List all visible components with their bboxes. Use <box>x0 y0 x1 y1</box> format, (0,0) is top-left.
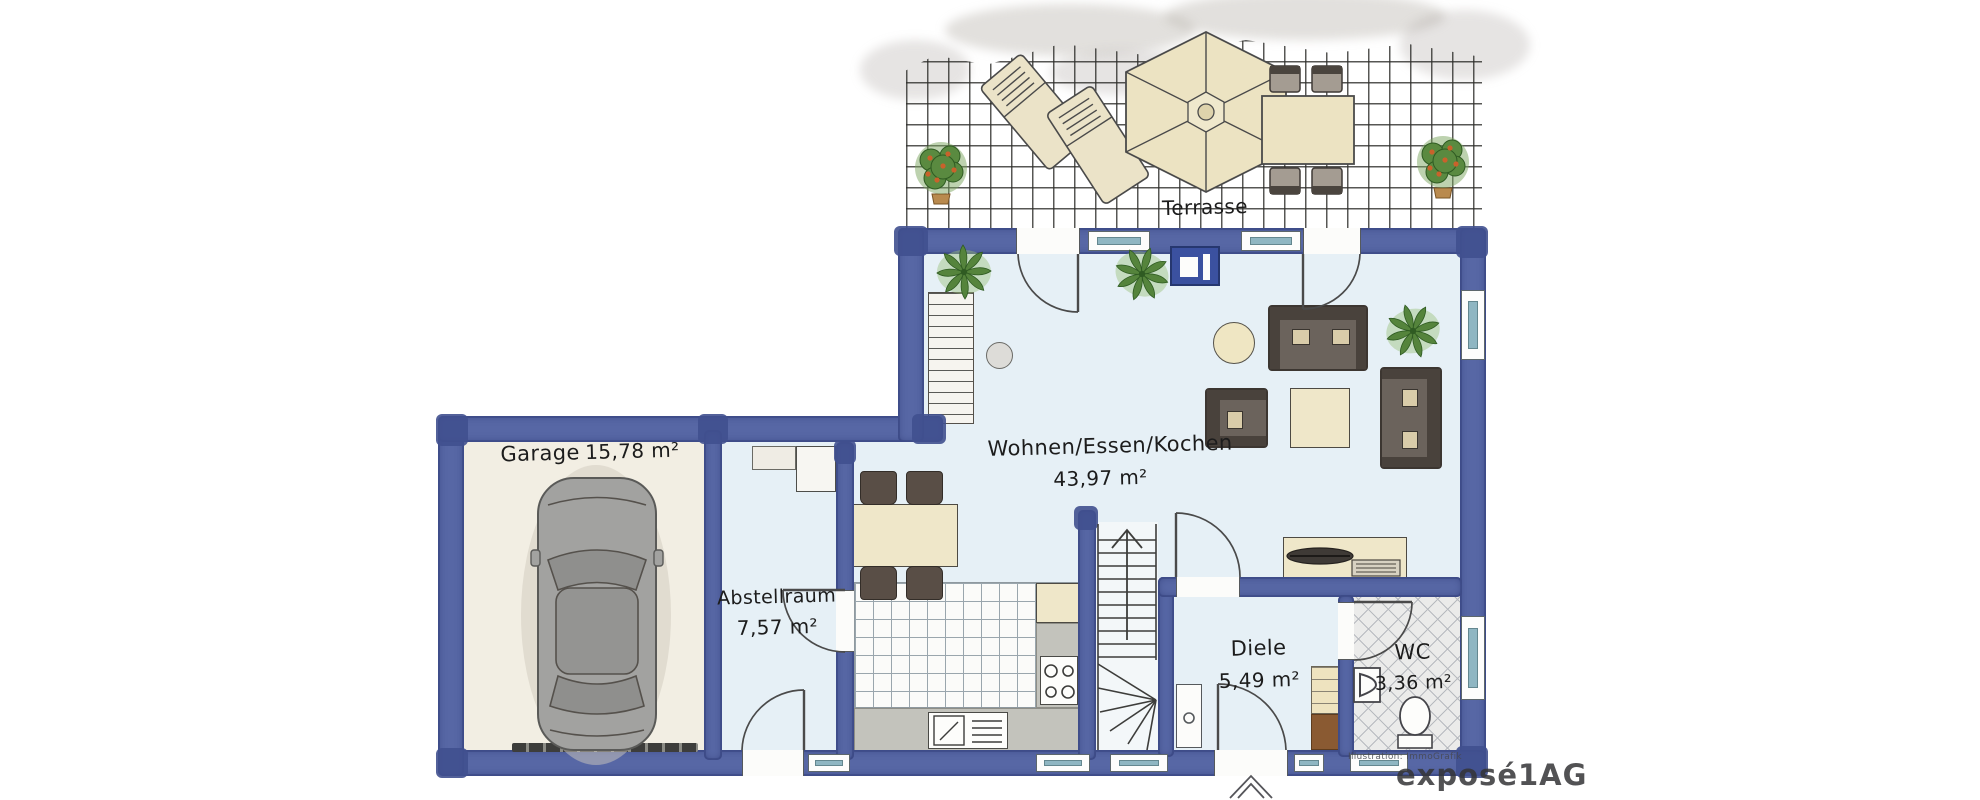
sofa-two-seat-top <box>1268 305 1368 371</box>
room-label-wc: WC 3,36 m² <box>1367 635 1459 699</box>
dining-chair <box>860 471 897 505</box>
window-pane <box>1119 760 1159 767</box>
window-bottom-stairs <box>1110 754 1168 772</box>
dining-table <box>848 504 958 567</box>
dining-chair <box>906 471 943 505</box>
room-name: Garage <box>500 440 580 466</box>
terrace-door-opening-right <box>1303 228 1361 254</box>
window-top-1 <box>1088 231 1150 251</box>
window-right-living <box>1461 290 1485 360</box>
sofa-two-seat-right <box>1380 367 1442 469</box>
wall-post <box>436 748 468 778</box>
living-diele-door-gap <box>1176 577 1240 597</box>
wall-post <box>894 226 928 256</box>
wall-post <box>1456 226 1488 258</box>
window-pane <box>1250 237 1292 245</box>
storage-shelf <box>752 446 796 470</box>
room-label-wohnen: Wohnen/Essen/Kochen 43,97 m² <box>987 427 1213 496</box>
washing-machine <box>796 446 836 492</box>
room-label-garage: Garage 15,78 m² <box>490 433 691 471</box>
round-rug <box>1213 322 1255 364</box>
room-label-diele: Diele 5,49 m² <box>1203 631 1315 697</box>
wall-bottom <box>438 750 1486 776</box>
stove-pipe <box>1203 254 1210 280</box>
window-pane <box>1044 760 1081 767</box>
wall-kitchen-stairs <box>1078 510 1096 760</box>
room-label-abstellraum: Abstellraum 7,57 m² <box>711 581 843 645</box>
room-label-terrasse: Terrasse <box>1150 191 1261 225</box>
wall-living-left <box>898 228 924 442</box>
window-pane <box>815 760 844 767</box>
wall-post <box>912 414 946 444</box>
understairs-door <box>1176 684 1202 748</box>
window-pane <box>1299 760 1319 767</box>
wood-stove <box>1170 246 1220 286</box>
abstellraum-door-opening <box>742 750 804 776</box>
wall-stairs-diele <box>1158 577 1174 757</box>
room-area: 3,36 m² <box>1368 667 1459 699</box>
window-pane <box>1468 628 1477 687</box>
garage-door <box>512 743 698 752</box>
room-name: Abstellraum <box>711 581 842 614</box>
dining-chair <box>860 566 897 600</box>
window-bottom-diele <box>1294 754 1324 772</box>
window-top-2 <box>1241 231 1301 251</box>
garage-floor <box>464 442 704 754</box>
window-bottom-1 <box>808 754 850 772</box>
window-pane <box>1468 301 1477 350</box>
room-area: 15,78 m² <box>585 438 680 464</box>
room-area: 43,97 m² <box>988 460 1213 497</box>
stairwell-floor <box>1096 522 1158 754</box>
terrace-door-opening-left <box>1016 228 1080 254</box>
side-table-round <box>986 342 1013 369</box>
wall-post <box>698 414 728 444</box>
room-area: 5,49 m² <box>1204 663 1315 697</box>
entry-door-opening <box>1214 750 1288 776</box>
wall-post <box>1074 506 1098 530</box>
room-name: Diele <box>1203 631 1314 666</box>
wall-left-garage <box>438 416 464 776</box>
room-name: Terrasse <box>1162 194 1248 220</box>
stove-door <box>1180 257 1198 277</box>
room-area: 7,57 m² <box>712 611 843 645</box>
cooktop <box>1040 656 1078 705</box>
brand-watermark: exposé1AG <box>1396 758 1587 792</box>
kitchen-sink-unit <box>928 712 1008 749</box>
window-pane <box>1097 237 1140 245</box>
entrance-arrow-icon <box>1230 776 1272 798</box>
room-name: Wohnen/Essen/Kochen <box>987 427 1212 465</box>
wall-post <box>436 414 468 446</box>
room-name: WC <box>1367 635 1458 670</box>
wc-door-gap <box>1338 602 1354 660</box>
window-right-wc <box>1461 616 1485 700</box>
wall-post <box>834 440 856 464</box>
coffee-table <box>1290 388 1350 448</box>
kitchen-counter-corner <box>1036 583 1080 623</box>
shelf-unit <box>928 292 974 424</box>
dining-chair <box>906 566 943 600</box>
window-bottom-kitchen <box>1036 754 1090 772</box>
tv-lowboard <box>1283 537 1407 579</box>
floorplan-canvas: Garage 15,78 m² Wohnen/Essen/Kochen 43,9… <box>0 0 1980 800</box>
